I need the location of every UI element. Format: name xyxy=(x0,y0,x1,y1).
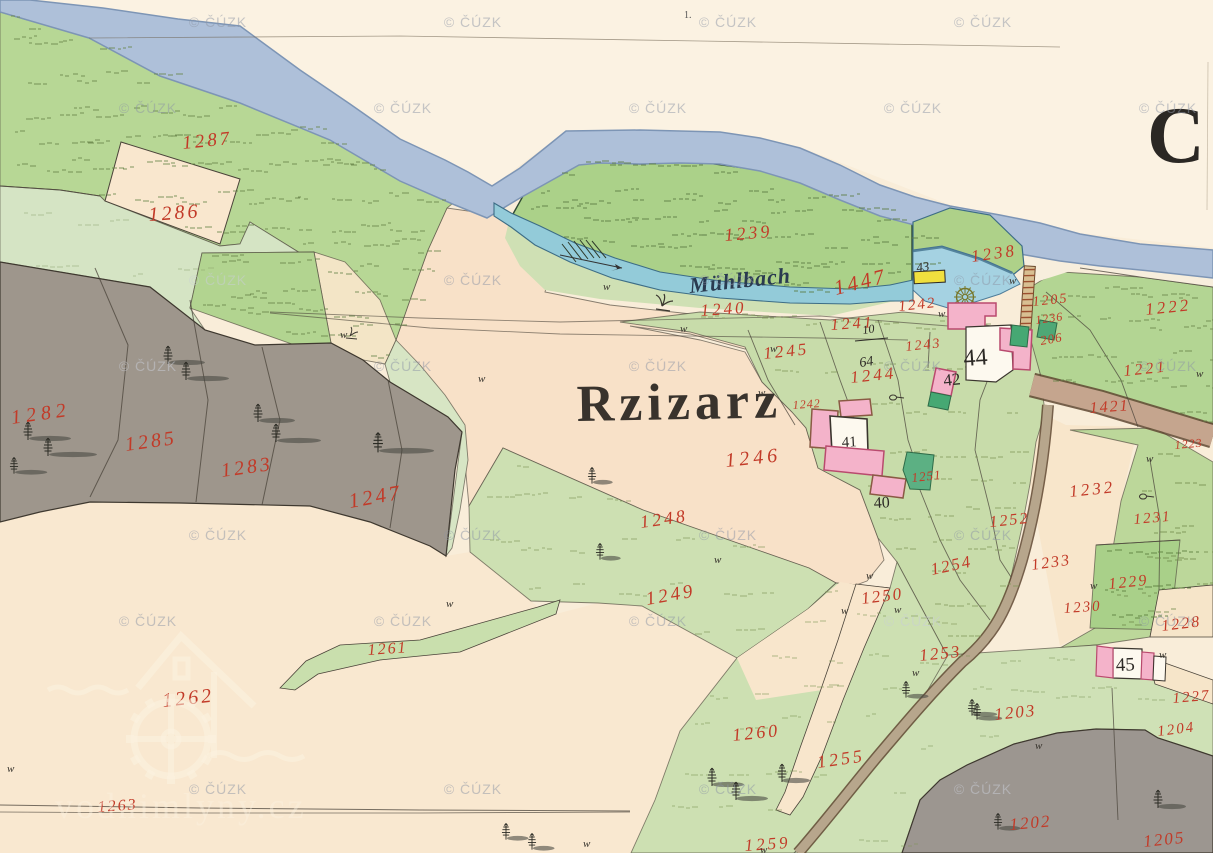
svg-text:40: 40 xyxy=(873,494,890,512)
svg-text:w: w xyxy=(1146,453,1154,465)
svg-text:© ČÚZK: © ČÚZK xyxy=(699,781,757,797)
svg-text:w: w xyxy=(912,667,920,679)
svg-text:© ČÚZK: © ČÚZK xyxy=(189,14,247,30)
svg-text:1240: 1240 xyxy=(700,298,747,320)
svg-text:© ČÚZK: © ČÚZK xyxy=(374,100,432,116)
svg-text:1230: 1230 xyxy=(1063,598,1102,617)
svg-text:1286: 1286 xyxy=(148,200,201,226)
svg-text:w: w xyxy=(7,763,15,775)
svg-text:w: w xyxy=(758,387,766,399)
svg-text:1261: 1261 xyxy=(367,639,408,659)
svg-text:w: w xyxy=(340,329,348,341)
svg-text:1239: 1239 xyxy=(724,221,774,245)
svg-text:© ČÚZK: © ČÚZK xyxy=(954,14,1012,30)
svg-text:© ČÚZK: © ČÚZK xyxy=(699,14,757,30)
svg-text:© ČÚZK: © ČÚZK xyxy=(189,272,247,288)
svg-text:© ČÚZK: © ČÚZK xyxy=(629,613,687,629)
svg-text:w: w xyxy=(1035,740,1043,752)
svg-text:w: w xyxy=(478,373,486,385)
svg-text:42: 42 xyxy=(942,369,961,390)
svg-text:1421: 1421 xyxy=(1089,397,1130,417)
svg-text:1259: 1259 xyxy=(744,833,791,853)
svg-text:© ČÚZK: © ČÚZK xyxy=(119,358,177,374)
svg-text:w: w xyxy=(446,598,454,610)
svg-text:© ČÚZK: © ČÚZK xyxy=(954,272,1012,288)
svg-text:© ČÚZK: © ČÚZK xyxy=(444,527,502,543)
svg-text:1223: 1223 xyxy=(1174,436,1203,452)
svg-text:© ČÚZK: © ČÚZK xyxy=(699,272,757,288)
svg-text:© ČÚZK: © ČÚZK xyxy=(444,781,502,797)
svg-text:© ČÚZK: © ČÚZK xyxy=(1139,358,1197,374)
svg-text:© ČÚZK: © ČÚZK xyxy=(884,613,942,629)
svg-text:© ČÚZK: © ČÚZK xyxy=(189,527,247,543)
svg-text:w: w xyxy=(770,343,778,355)
svg-text:© ČÚZK: © ČÚZK xyxy=(374,613,432,629)
svg-text:© ČÚZK: © ČÚZK xyxy=(699,527,757,543)
svg-text:© ČÚZK: © ČÚZK xyxy=(1139,100,1197,116)
svg-text:1251: 1251 xyxy=(911,467,942,485)
svg-text:44: 44 xyxy=(963,344,989,372)
svg-text:w: w xyxy=(938,308,946,320)
svg-text:43: 43 xyxy=(915,258,930,275)
svg-text:1231: 1231 xyxy=(1133,509,1172,528)
svg-text:© ČÚZK: © ČÚZK xyxy=(954,527,1012,543)
svg-text:64: 64 xyxy=(858,354,874,371)
svg-text:w: w xyxy=(866,570,874,582)
svg-text:1202: 1202 xyxy=(1009,811,1052,834)
svg-text:© ČÚZK: © ČÚZK xyxy=(884,358,942,374)
svg-text:w: w xyxy=(714,554,722,566)
svg-text:© ČÚZK: © ČÚZK xyxy=(189,781,247,797)
svg-text:41: 41 xyxy=(841,434,857,451)
svg-text:© ČÚZK: © ČÚZK xyxy=(444,272,502,288)
svg-text:45: 45 xyxy=(1115,654,1135,676)
svg-text:Rzizarz: Rzizarz xyxy=(576,372,782,433)
svg-text:10: 10 xyxy=(861,321,875,337)
svg-text:© ČÚZK: © ČÚZK xyxy=(444,14,502,30)
svg-text:© ČÚZK: © ČÚZK xyxy=(374,358,432,374)
svg-text:© ČÚZK: © ČÚZK xyxy=(629,358,687,374)
svg-text:© ČÚZK: © ČÚZK xyxy=(1139,613,1197,629)
svg-text:w: w xyxy=(1159,649,1167,661)
svg-text:© ČÚZK: © ČÚZK xyxy=(884,100,942,116)
svg-text:w: w xyxy=(841,605,849,617)
svg-text:© ČÚZK: © ČÚZK xyxy=(119,613,177,629)
svg-text:w: w xyxy=(603,281,611,293)
svg-text:w: w xyxy=(760,844,768,853)
svg-text:1227: 1227 xyxy=(1172,688,1211,707)
svg-text:w: w xyxy=(680,323,688,335)
svg-text:1.: 1. xyxy=(684,10,692,21)
svg-text:vodnimlyny.cz: vodnimlyny.cz xyxy=(55,786,307,826)
svg-text:© ČÚZK: © ČÚZK xyxy=(629,100,687,116)
svg-text:w: w xyxy=(583,838,591,850)
svg-text:w: w xyxy=(1196,368,1204,380)
svg-text:© ČÚZK: © ČÚZK xyxy=(954,781,1012,797)
svg-text:w: w xyxy=(1090,580,1098,592)
svg-text:1242: 1242 xyxy=(792,396,821,412)
svg-text:© ČÚZK: © ČÚZK xyxy=(119,100,177,116)
